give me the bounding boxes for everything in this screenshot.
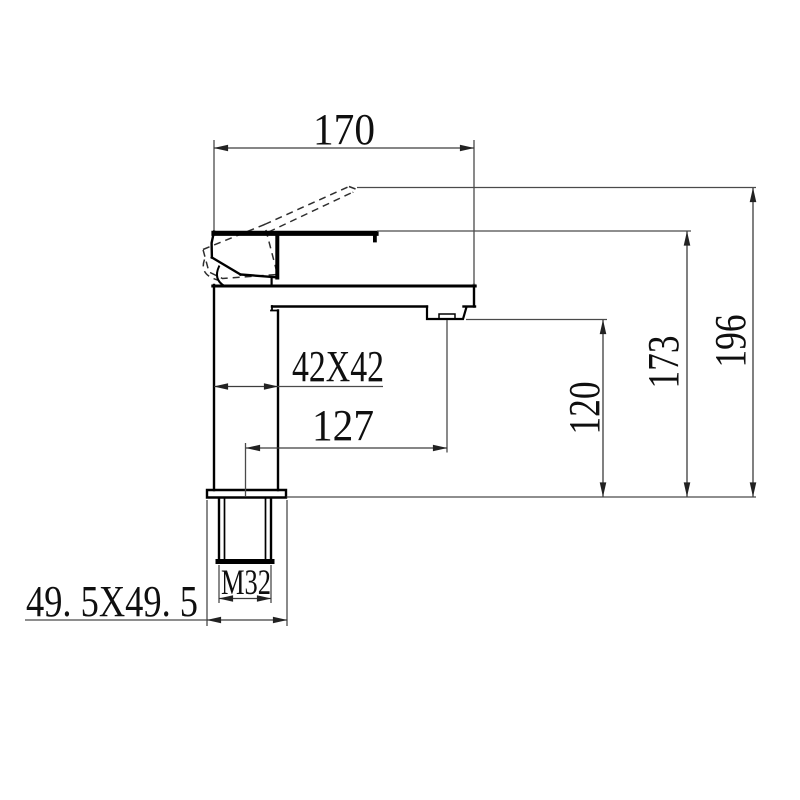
aerator-outlet — [427, 307, 467, 320]
dim-label-49x49: 49. 5X49. 5 — [26, 577, 198, 626]
handle-neck-arc — [217, 267, 225, 287]
aerator-outline — [427, 307, 467, 320]
dim-label-127: 127 — [312, 401, 374, 450]
dim-label-170: 170 — [313, 105, 375, 154]
dim-label-m32: M32 — [221, 562, 271, 602]
faucet-technical-drawing: 170 42X42 127 120 173 196 — [0, 0, 800, 800]
phantom-handle-arc — [203, 260, 217, 281]
dimension-overall-height: 196 — [357, 188, 756, 497]
phantom-lever-lower-line — [269, 192, 353, 232]
dimension-outlet-height: 120 — [466, 320, 609, 497]
dim-label-196: 196 — [706, 315, 755, 368]
dimension-body-cross-section: 42X42 — [214, 342, 384, 391]
dimension-spout-width: 170 — [214, 105, 474, 285]
technical-drawing-page: 170 42X42 127 120 173 196 — [0, 0, 800, 800]
spout-body — [213, 285, 475, 307]
dim-label-173: 173 — [639, 336, 688, 389]
thread-shank — [218, 499, 272, 562]
phantom-lever-upper-line — [265, 187, 350, 225]
dim-label-42x42: 42X42 — [292, 342, 384, 391]
aerator-inner-notch — [439, 314, 455, 319]
dimension-spout-height: 173 — [377, 231, 691, 497]
base-plate-outline — [207, 490, 286, 498]
dimension-thread: M32 — [219, 562, 271, 603]
phantom-lever-tip — [349, 187, 356, 193]
base-plate — [207, 490, 286, 498]
dim-label-120: 120 — [560, 382, 609, 435]
dimensions: 170 42X42 127 120 173 196 — [25, 105, 756, 626]
